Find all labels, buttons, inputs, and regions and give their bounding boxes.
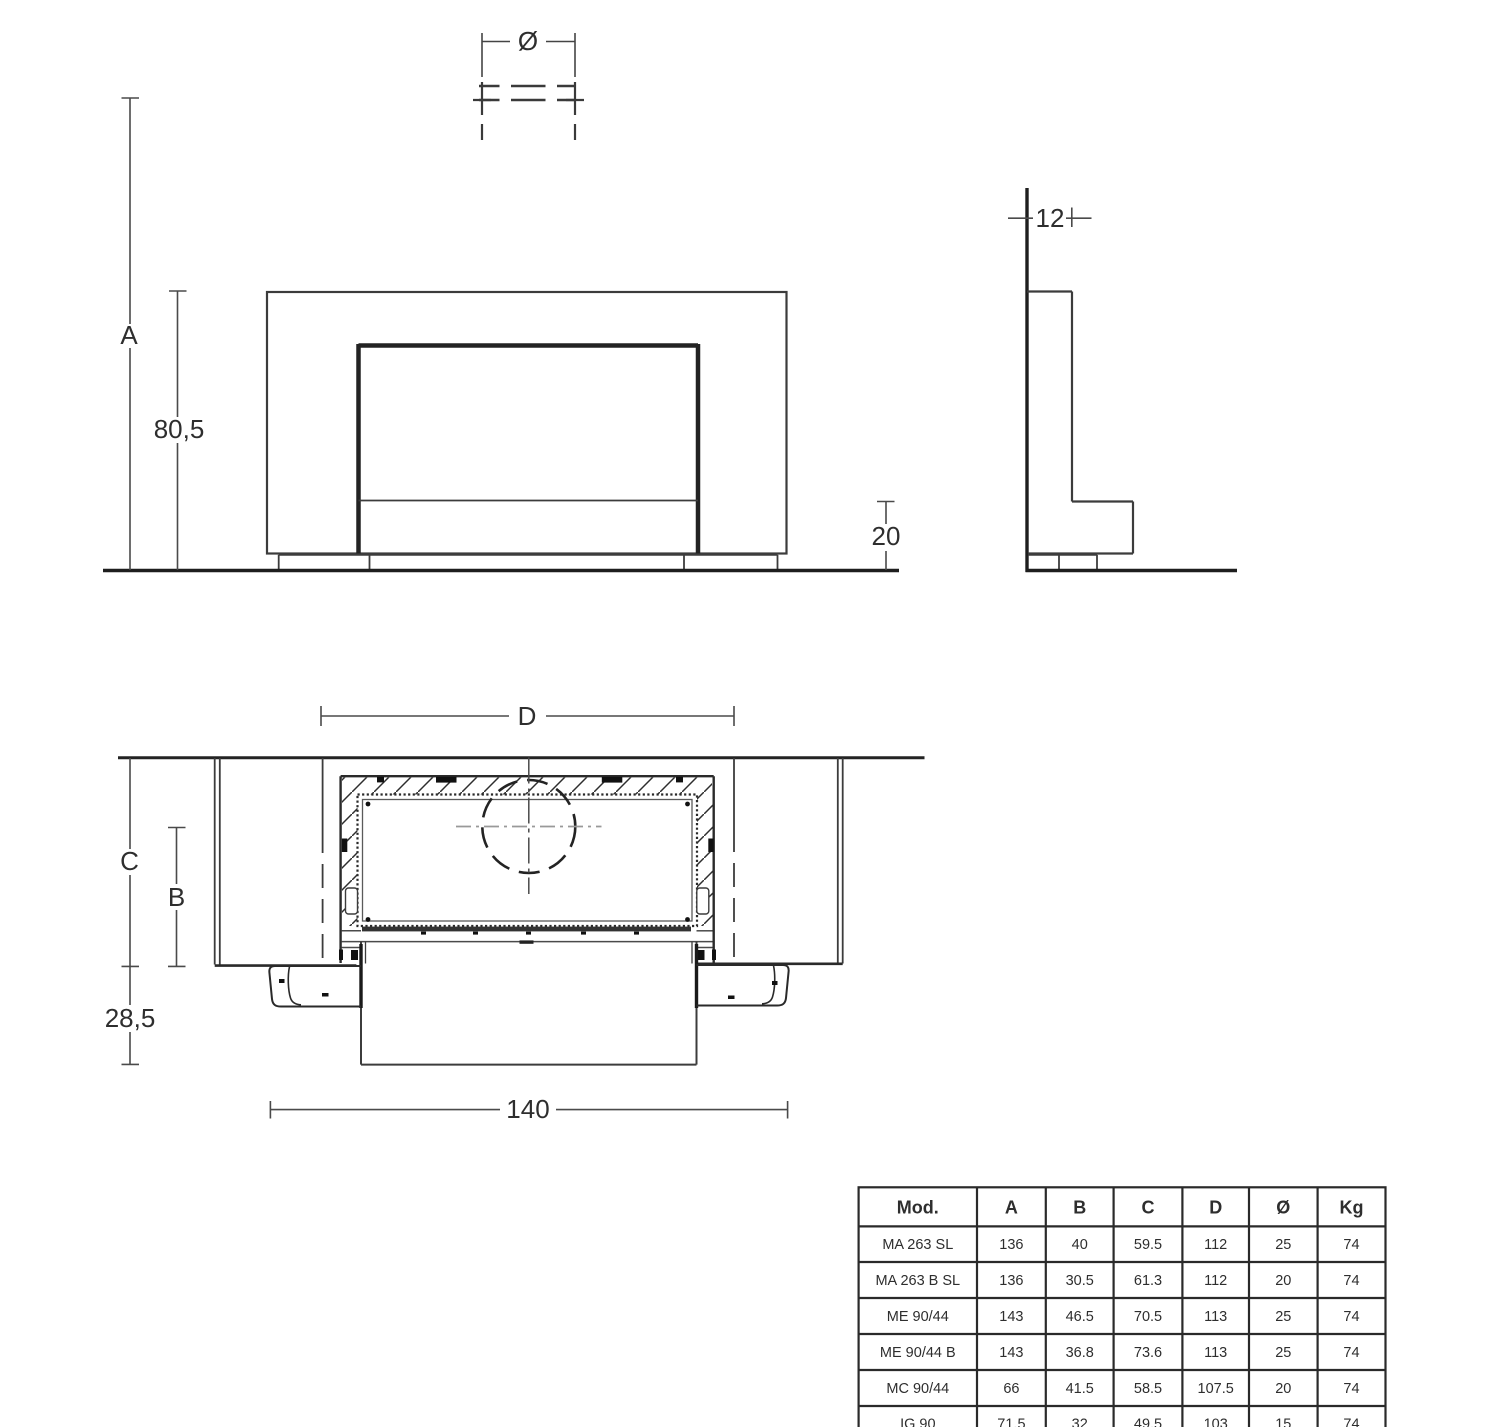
svg-text:ME 90/44 B: ME 90/44 B <box>880 1345 956 1361</box>
svg-text:15: 15 <box>1275 1417 1291 1427</box>
svg-text:C: C <box>1142 1198 1155 1218</box>
svg-text:66: 66 <box>1003 1381 1019 1397</box>
svg-text:70.5: 70.5 <box>1134 1309 1162 1325</box>
svg-text:D: D <box>518 701 537 731</box>
svg-text:58.5: 58.5 <box>1134 1381 1162 1397</box>
svg-text:ME 90/44: ME 90/44 <box>887 1309 949 1325</box>
svg-text:103: 103 <box>1204 1417 1228 1427</box>
svg-text:20: 20 <box>1275 1381 1291 1397</box>
svg-text:32: 32 <box>1072 1417 1088 1427</box>
svg-text:73.6: 73.6 <box>1134 1345 1162 1361</box>
svg-text:143: 143 <box>999 1309 1023 1325</box>
svg-text:113: 113 <box>1204 1345 1227 1361</box>
svg-text:136: 136 <box>999 1273 1023 1289</box>
svg-text:74: 74 <box>1343 1309 1359 1325</box>
svg-text:113: 113 <box>1204 1309 1227 1325</box>
svg-text:Kg: Kg <box>1340 1198 1364 1218</box>
svg-text:B: B <box>168 882 185 912</box>
svg-text:12: 12 <box>1036 203 1065 233</box>
svg-text:80,5: 80,5 <box>154 414 205 444</box>
svg-text:107.5: 107.5 <box>1198 1381 1234 1397</box>
svg-text:IG 90: IG 90 <box>900 1417 935 1427</box>
svg-text:74: 74 <box>1343 1417 1359 1427</box>
svg-text:MA 263 SL: MA 263 SL <box>882 1237 953 1253</box>
svg-text:74: 74 <box>1343 1345 1359 1361</box>
svg-text:59.5: 59.5 <box>1134 1237 1162 1253</box>
svg-text:MA 263 B SL: MA 263 B SL <box>875 1273 960 1289</box>
svg-text:49.5: 49.5 <box>1134 1417 1162 1427</box>
svg-text:25: 25 <box>1275 1309 1291 1325</box>
svg-text:41.5: 41.5 <box>1066 1381 1094 1397</box>
svg-text:A: A <box>120 320 138 350</box>
svg-text:20: 20 <box>1275 1273 1291 1289</box>
svg-text:46.5: 46.5 <box>1066 1309 1094 1325</box>
svg-text:74: 74 <box>1343 1237 1359 1253</box>
svg-text:112: 112 <box>1204 1273 1227 1289</box>
svg-text:74: 74 <box>1343 1381 1359 1397</box>
svg-text:74: 74 <box>1343 1273 1359 1289</box>
svg-text:136: 136 <box>999 1237 1023 1253</box>
svg-text:A: A <box>1005 1198 1018 1218</box>
svg-text:140: 140 <box>506 1094 549 1124</box>
svg-text:71.5: 71.5 <box>997 1417 1025 1427</box>
svg-text:25: 25 <box>1275 1237 1291 1253</box>
svg-text:MC 90/44: MC 90/44 <box>886 1381 949 1397</box>
svg-text:25: 25 <box>1275 1345 1291 1361</box>
svg-text:61.3: 61.3 <box>1134 1273 1162 1289</box>
svg-text:112: 112 <box>1204 1237 1227 1253</box>
svg-text:D: D <box>1209 1198 1222 1218</box>
svg-text:Ø: Ø <box>1276 1198 1290 1218</box>
svg-text:40: 40 <box>1072 1237 1088 1253</box>
svg-text:28,5: 28,5 <box>105 1003 156 1033</box>
svg-text:36.8: 36.8 <box>1066 1345 1094 1361</box>
svg-text:30.5: 30.5 <box>1066 1273 1094 1289</box>
svg-text:B: B <box>1073 1198 1086 1218</box>
svg-text:20: 20 <box>872 521 901 551</box>
svg-text:Ø: Ø <box>518 26 538 56</box>
svg-text:C: C <box>120 846 139 876</box>
svg-text:143: 143 <box>999 1345 1023 1361</box>
svg-text:Mod.: Mod. <box>897 1198 939 1218</box>
